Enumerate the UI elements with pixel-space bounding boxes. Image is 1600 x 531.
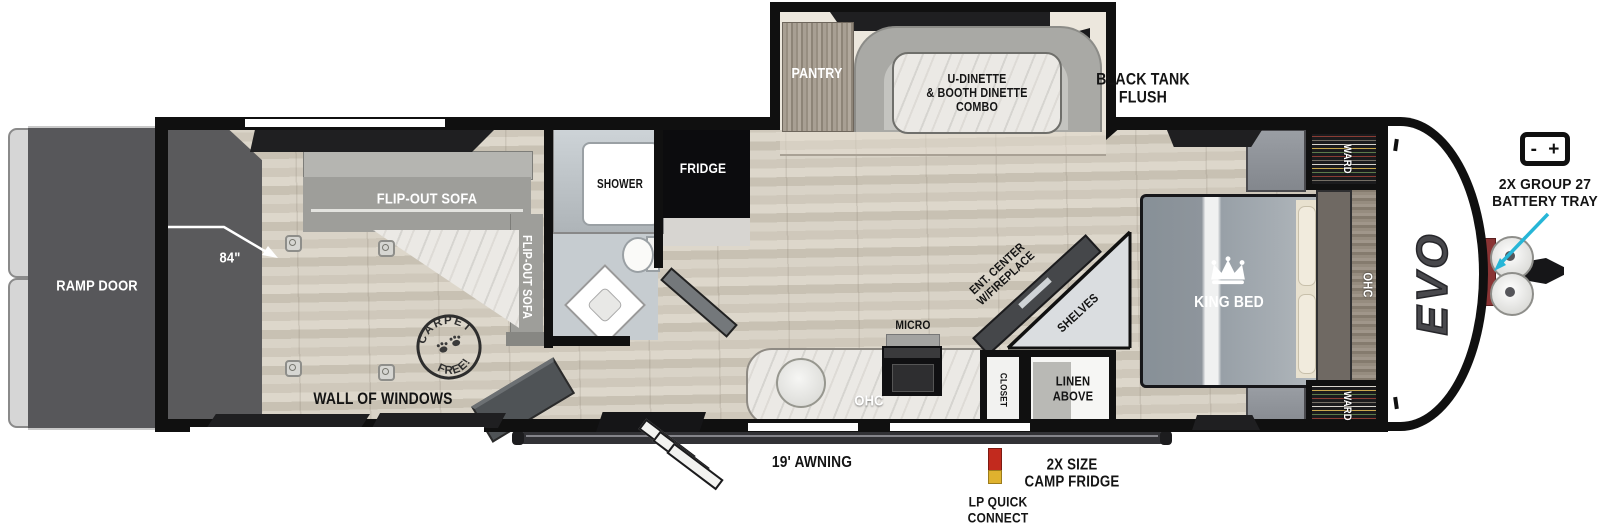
- wall-of-windows-label: WALL OF WINDOWS: [313, 389, 452, 409]
- slideout-wall-right: [1106, 2, 1116, 130]
- floorplan-canvas: RAMP DOOR FLIP-OUT SOFA FLIP-OUT SOFA WA…: [0, 0, 1600, 531]
- bathroom-wall-right: [654, 120, 663, 268]
- flip-out-sofa-label: FLIP-OUT SOFA: [377, 191, 477, 208]
- pillow-top: [1298, 206, 1316, 286]
- oven-window: [892, 364, 934, 392]
- tie-down-ring: [285, 360, 302, 377]
- camp-fridge-label: 2X SIZE CAMP FRIDGE: [1025, 457, 1120, 492]
- headboard: [1316, 190, 1352, 386]
- ramp-door-label: RAMP DOOR: [56, 278, 138, 295]
- wall-right: [1376, 117, 1388, 432]
- battery-plus: +: [1548, 140, 1559, 159]
- propane-tank-1-cap: [1505, 251, 1515, 261]
- kitchen-sink: [776, 358, 826, 408]
- wall-of-windows-window2: [372, 413, 506, 428]
- bottom-wall-white-strip: [190, 427, 484, 432]
- paw-print-icon: [435, 334, 463, 354]
- battery-tray-label: 2X GROUP 27 BATTERY TRAY: [1492, 177, 1598, 211]
- stove-burner-bar: [884, 348, 940, 358]
- shower-label: SHOWER: [597, 177, 643, 191]
- bathroom-wall-left: [544, 120, 553, 348]
- dinette-label-line3: COMBO: [926, 100, 1027, 114]
- wardrobe-bottom-label: WARD: [1341, 391, 1353, 421]
- bathroom-wall-bottom: [544, 336, 630, 346]
- black-tank-line1: BLACK TANK: [1096, 71, 1190, 89]
- flip-out-sofa-back: [303, 151, 533, 180]
- slideout-wall-left: [770, 2, 780, 130]
- dinette-label-line1: U-DINETTE: [926, 72, 1027, 86]
- linen-line1: LINEN: [1053, 374, 1094, 389]
- lp-quick-connect-label: LP QUICK CONNECT: [968, 494, 1029, 525]
- pillow-bottom: [1298, 294, 1316, 374]
- propane-tank-2-cap: [1505, 287, 1515, 297]
- flip-out-sofa-foot: [506, 332, 544, 346]
- black-tank-line2: FLUSH: [1096, 89, 1190, 107]
- bedroom-bottom-window: [1190, 415, 1260, 430]
- awning-end-cap-right: [1160, 431, 1172, 445]
- cargo-dark-area: [160, 128, 262, 420]
- camp-fridge-line1: 2X SIZE: [1025, 457, 1120, 474]
- flip-out-sofa-side-label: FLIP-OUT SOFA: [520, 235, 534, 319]
- lp-line1: LP QUICK: [968, 494, 1029, 510]
- crown-icon: [1206, 256, 1250, 286]
- battery-minus: -: [1531, 140, 1537, 159]
- dinette-label: U-DINETTE & BOOTH DINETTE COMBO: [926, 72, 1027, 114]
- lp-quick-connect-icon-tip: [988, 470, 1002, 484]
- battery-line2: BATTERY TRAY: [1492, 194, 1598, 211]
- slideout-wall-top: [770, 2, 1116, 12]
- battery-icon: - +: [1520, 132, 1570, 166]
- king-bed-label: KING BED: [1194, 294, 1264, 312]
- wardrobe-top-label: WARD: [1341, 144, 1353, 174]
- awning-bar-highlight: [526, 435, 1158, 437]
- kitchen-window-segment2: [890, 423, 1030, 431]
- flip-out-sofa-seam: [311, 209, 523, 212]
- brand-logo: EVO: [1408, 231, 1458, 336]
- camp-fridge-line2: CAMP FRIDGE: [1025, 474, 1120, 491]
- battery-line1: 2X GROUP 27: [1492, 177, 1598, 194]
- bedroom-top-window: [1164, 130, 1262, 147]
- awning-label: 19' AWNING: [772, 454, 852, 472]
- wall-left: [155, 117, 168, 432]
- tie-down-ring: [378, 364, 395, 381]
- fridge-base: [660, 214, 750, 246]
- entry-step-3: [666, 443, 723, 491]
- wall-top-right: [1116, 117, 1388, 130]
- linen-label: LINEN ABOVE: [1053, 374, 1094, 403]
- lp-line2: CONNECT: [968, 510, 1029, 526]
- toilet-bowl: [622, 237, 654, 273]
- pantry-label: PANTRY: [792, 66, 843, 82]
- cargo-length-label: 84": [220, 250, 241, 267]
- kitchen-window-segment1: [748, 423, 858, 431]
- tie-down-ring: [378, 240, 395, 257]
- bedroom-ohc-label: OHC: [1361, 272, 1376, 297]
- fridge-label: FRIDGE: [680, 160, 727, 176]
- dinette-label-line2: & BOOTH DINETTE: [926, 86, 1027, 100]
- awning-bar: [518, 432, 1166, 444]
- top-wall-window-segment: [245, 119, 445, 127]
- cargo-top-window: [250, 130, 494, 152]
- kitchen-ohc-label: OHC: [854, 393, 883, 410]
- closet-label: CLOSET: [998, 373, 1009, 407]
- tie-down-ring: [285, 235, 302, 252]
- lp-quick-connect-icon: [988, 448, 1002, 472]
- micro-label: MICRO: [895, 318, 930, 332]
- black-tank-flush-label: BLACK TANK FLUSH: [1096, 71, 1190, 108]
- linen-line2: ABOVE: [1053, 389, 1094, 404]
- awning-end-cap-left: [512, 431, 524, 445]
